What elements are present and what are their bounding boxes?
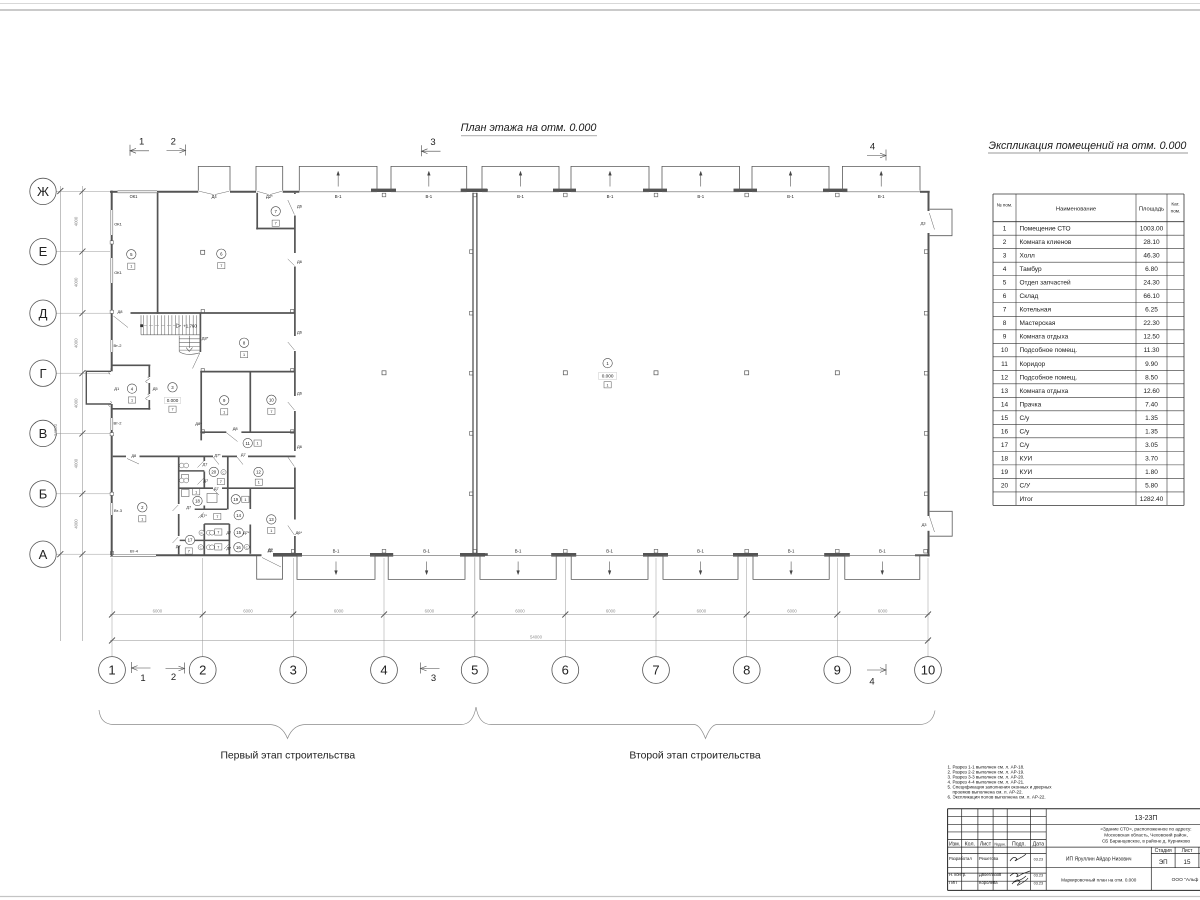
svg-text:3: 3 <box>431 673 436 684</box>
svg-text:9: 9 <box>1003 334 1007 341</box>
svg-text:2: 2 <box>1003 239 1007 246</box>
svg-text:1: 1 <box>108 663 115 678</box>
svg-text:С/у: С/у <box>1020 428 1031 435</box>
svg-text:13-23П: 13-23П <box>1135 815 1158 822</box>
svg-text:В-1: В-1 <box>697 194 704 199</box>
svg-text:03.23: 03.23 <box>1034 857 1044 861</box>
svg-text:Площадь: Площадь <box>1139 206 1164 212</box>
svg-text:В-1: В-1 <box>335 194 342 199</box>
svg-text:Ж: Ж <box>37 184 49 199</box>
svg-text:6000: 6000 <box>697 608 707 613</box>
svg-text:5: 5 <box>1003 280 1007 287</box>
svg-text:Наименование: Наименование <box>1056 206 1096 212</box>
svg-text:Д7: Д7 <box>214 486 219 491</box>
svg-text:Кол.: Кол. <box>965 841 975 847</box>
svg-text:7: 7 <box>652 663 659 678</box>
svg-text:Д1: Д1 <box>114 386 120 391</box>
svg-text:2: 2 <box>171 137 176 148</box>
svg-text:1: 1 <box>270 529 272 533</box>
svg-text:Котельная: Котельная <box>1020 307 1052 314</box>
svg-text:1: 1 <box>258 481 260 485</box>
svg-text:1: 1 <box>141 517 143 521</box>
svg-text:Второй этап строительства: Второй этап строительства <box>629 750 760 761</box>
svg-text:Подсобное помещ.: Подсобное помещ. <box>1020 373 1078 381</box>
svg-text:11: 11 <box>245 441 250 446</box>
svg-text:С/у: С/у <box>1020 442 1031 449</box>
svg-text:10: 10 <box>921 663 935 678</box>
svg-text:ООО "Альф: ООО "Альф <box>1172 877 1199 883</box>
svg-text:7: 7 <box>217 531 219 535</box>
svg-text:Вт-2: Вт-2 <box>114 343 123 348</box>
svg-text:8: 8 <box>743 663 750 678</box>
svg-text:Склад: Склад <box>1020 293 1039 300</box>
svg-text:1: 1 <box>223 410 225 414</box>
svg-text:Д: Д <box>39 306 48 321</box>
svg-text:1: 1 <box>607 383 609 387</box>
svg-text:В-1: В-1 <box>787 194 794 199</box>
svg-text:План этажа на отм. 0.000: План этажа на отм. 0.000 <box>461 122 597 134</box>
svg-text:В: В <box>39 426 48 441</box>
svg-text:7: 7 <box>188 550 190 554</box>
svg-text:5.80: 5.80 <box>1145 482 1158 489</box>
svg-text:7: 7 <box>171 408 173 412</box>
svg-text:4000: 4000 <box>74 458 79 468</box>
svg-text:6000: 6000 <box>878 608 888 613</box>
svg-text:15: 15 <box>1001 415 1009 422</box>
svg-text:6000: 6000 <box>787 608 797 613</box>
svg-text:Д3: Д3 <box>922 522 928 527</box>
svg-text:3: 3 <box>290 663 297 678</box>
svg-text:Г: Г <box>39 366 46 381</box>
svg-text:В-1: В-1 <box>333 548 340 553</box>
svg-text:6000: 6000 <box>153 608 163 613</box>
svg-text:Д2*: Д2* <box>266 194 273 199</box>
svg-text:Д8: Д8 <box>233 426 239 431</box>
svg-text:Решетова: Решетова <box>979 856 999 861</box>
svg-text:С/У: С/У <box>1020 482 1032 489</box>
svg-text:Итог: Итог <box>1020 496 1034 503</box>
svg-text:24.30: 24.30 <box>1143 280 1160 287</box>
svg-text:Комната отдыха: Комната отдыха <box>1020 334 1069 341</box>
svg-text:Кат.: Кат. <box>1171 202 1179 207</box>
svg-text:Д7: Д7 <box>226 530 231 535</box>
svg-text:Вт-4: Вт-4 <box>130 548 139 553</box>
svg-text:7: 7 <box>270 410 272 414</box>
svg-text:Разработал: Разработал <box>949 856 972 861</box>
svg-text:А: А <box>39 547 48 562</box>
svg-text:7: 7 <box>216 515 218 519</box>
svg-text:№док.: №док. <box>994 841 1006 846</box>
svg-text:4: 4 <box>869 677 874 688</box>
svg-text:3.05: 3.05 <box>1145 442 1158 449</box>
svg-text:В-1: В-1 <box>878 194 885 199</box>
svg-text:66.10: 66.10 <box>1143 293 1160 300</box>
svg-text:2: 2 <box>171 672 176 683</box>
svg-text:+1.760: +1.760 <box>183 324 197 329</box>
svg-text:16: 16 <box>236 545 241 550</box>
svg-text:Стадия: Стадия <box>1155 848 1172 854</box>
svg-text:Д7*: Д7* <box>201 513 208 518</box>
svg-text:Лист: Лист <box>1182 848 1194 854</box>
svg-text:Подсобное помещ.: Подсобное помещ. <box>1020 346 1078 354</box>
svg-text:1: 1 <box>139 137 144 148</box>
svg-text:Экспликация помещений на отм.: Экспликация помещений на отм. 0.000 <box>989 140 1187 152</box>
svg-text:В-1: В-1 <box>423 548 430 553</box>
svg-text:20: 20 <box>211 470 216 475</box>
svg-text:Е: Е <box>39 244 48 259</box>
svg-text:Двоеглазов: Двоеглазов <box>979 872 1002 877</box>
svg-text:28.10: 28.10 <box>1143 239 1160 246</box>
svg-text:1282.40: 1282.40 <box>1140 496 1164 503</box>
svg-text:Д7: Д7 <box>241 452 246 457</box>
svg-text:№ пом.: № пом. <box>997 203 1013 208</box>
svg-text:Прачка: Прачка <box>1020 401 1042 408</box>
svg-text:6000: 6000 <box>515 608 525 613</box>
svg-text:Д7*: Д7* <box>214 453 221 458</box>
svg-text:Д8*: Д8* <box>202 336 209 341</box>
svg-text:Д8*: Д8* <box>195 421 202 426</box>
svg-text:В-1: В-1 <box>515 548 522 553</box>
svg-text:Д6: Д6 <box>297 391 303 396</box>
svg-text:46.30: 46.30 <box>1143 253 1160 260</box>
svg-text:Подп.: Подп. <box>1012 841 1026 847</box>
svg-text:«Здание СТО», расположенное по: «Здание СТО», расположенное по адресу: <box>1100 827 1191 832</box>
svg-text:Московская область, Чеховский: Московская область, Чеховский район, <box>1104 832 1188 838</box>
svg-text:Д6: Д6 <box>297 259 303 264</box>
svg-text:Д7: Д7 <box>203 462 208 467</box>
svg-text:7: 7 <box>275 222 277 226</box>
svg-text:0.000: 0.000 <box>167 398 179 403</box>
svg-text:2: 2 <box>199 663 206 678</box>
svg-text:Холл: Холл <box>1020 253 1036 260</box>
svg-text:7: 7 <box>217 545 219 549</box>
svg-text:1.35: 1.35 <box>1145 415 1158 422</box>
svg-text:12.60: 12.60 <box>1143 388 1160 395</box>
svg-text:Д4: Д4 <box>212 194 218 199</box>
svg-text:4: 4 <box>380 663 387 678</box>
svg-text:Д7: Д7 <box>186 504 191 509</box>
svg-text:7: 7 <box>220 264 222 268</box>
svg-text:В-1: В-1 <box>697 548 704 553</box>
svg-text:1003.00: 1003.00 <box>1140 226 1164 233</box>
svg-text:3: 3 <box>430 137 435 148</box>
svg-text:22.30: 22.30 <box>1143 320 1160 327</box>
svg-text:9.90: 9.90 <box>1145 361 1158 368</box>
svg-text:Комната отдыха: Комната отдыха <box>1020 388 1069 395</box>
svg-text:КУИ: КУИ <box>1020 455 1033 462</box>
svg-text:10: 10 <box>1001 347 1009 354</box>
svg-text:Мастерская: Мастерская <box>1020 320 1056 327</box>
svg-text:Д2: Д2 <box>268 547 273 552</box>
svg-text:1.35: 1.35 <box>1145 428 1158 435</box>
svg-text:15: 15 <box>236 530 241 535</box>
svg-text:13: 13 <box>269 517 274 522</box>
svg-text:Вт-2: Вт-2 <box>114 421 123 426</box>
svg-text:Лист: Лист <box>980 841 992 847</box>
svg-text:Д7: Д7 <box>203 478 208 483</box>
svg-text:8: 8 <box>1003 320 1007 327</box>
svg-text:6: 6 <box>1003 293 1007 300</box>
svg-text:12: 12 <box>1001 374 1009 381</box>
svg-text:14: 14 <box>1001 401 1009 408</box>
svg-text:54000: 54000 <box>530 634 543 639</box>
svg-text:03.23: 03.23 <box>1034 881 1044 885</box>
svg-text:ОК1: ОК1 <box>114 270 122 275</box>
svg-text:19: 19 <box>1001 469 1009 476</box>
svg-text:ОК1: ОК1 <box>114 222 122 227</box>
svg-text:4000: 4000 <box>74 519 79 529</box>
svg-text:Изм.: Изм. <box>949 841 960 847</box>
svg-text:СБ Баранцевское, в районе д. К: СБ Баранцевское, в районе д. Курниково <box>1102 838 1191 844</box>
svg-text:1: 1 <box>131 399 133 403</box>
svg-text:6: 6 <box>562 663 569 678</box>
svg-text:Помещение СТО: Помещение СТО <box>1020 226 1071 233</box>
svg-text:ГИП: ГИП <box>949 880 957 885</box>
svg-text:17: 17 <box>188 538 193 543</box>
svg-text:Д8: Д8 <box>131 453 136 458</box>
svg-text:В-1: В-1 <box>607 194 614 199</box>
svg-text:7: 7 <box>220 480 222 484</box>
svg-text:Д3: Д3 <box>921 221 927 226</box>
svg-text:В-1: В-1 <box>517 194 524 199</box>
svg-text:Д8: Д8 <box>118 309 124 314</box>
svg-text:КУИ: КУИ <box>1020 469 1033 476</box>
svg-text:6000: 6000 <box>243 608 253 613</box>
svg-text:14: 14 <box>236 513 241 518</box>
svg-text:Д6*: Д6* <box>296 530 303 535</box>
svg-text:18: 18 <box>195 499 200 504</box>
svg-text:4: 4 <box>1003 266 1007 273</box>
svg-text:8.50: 8.50 <box>1145 374 1158 381</box>
svg-text:пом.: пом. <box>1171 208 1181 213</box>
svg-text:6000: 6000 <box>425 608 435 613</box>
svg-text:7.40: 7.40 <box>1145 401 1158 408</box>
svg-text:Отдел запчастей: Отдел запчастей <box>1020 279 1071 287</box>
svg-text:1: 1 <box>257 442 259 446</box>
svg-text:6.80: 6.80 <box>1145 266 1158 273</box>
svg-text:9: 9 <box>834 663 841 678</box>
svg-text:6000: 6000 <box>334 608 344 613</box>
svg-text:В-1: В-1 <box>426 194 433 199</box>
svg-text:24000: 24000 <box>53 423 58 436</box>
svg-text:12: 12 <box>256 470 261 475</box>
svg-text:4000: 4000 <box>74 216 79 226</box>
svg-text:4000: 4000 <box>74 398 79 408</box>
svg-text:13: 13 <box>1001 388 1009 395</box>
svg-text:Комната клиенов: Комната клиенов <box>1020 239 1072 246</box>
svg-text:1: 1 <box>243 353 245 357</box>
svg-text:4000: 4000 <box>74 338 79 348</box>
svg-text:Д7: Д7 <box>176 544 181 549</box>
svg-text:Коридор: Коридор <box>1020 361 1046 368</box>
svg-text:15: 15 <box>1184 859 1191 866</box>
svg-text:ЭП: ЭП <box>1159 859 1168 866</box>
svg-text:17: 17 <box>1001 442 1009 449</box>
svg-text:10: 10 <box>269 398 274 403</box>
svg-text:20: 20 <box>1001 482 1009 489</box>
svg-text:Д6: Д6 <box>297 203 303 208</box>
svg-text:Первый этап строительства: Первый этап строительства <box>220 750 355 761</box>
svg-text:7: 7 <box>1003 307 1007 314</box>
svg-text:4000: 4000 <box>74 277 79 287</box>
svg-text:В-1: В-1 <box>879 548 886 553</box>
svg-text:Тамбур: Тамбур <box>1020 265 1042 273</box>
svg-text:4: 4 <box>870 142 875 153</box>
svg-text:0.000: 0.000 <box>602 374 614 379</box>
svg-text:1: 1 <box>140 673 145 684</box>
svg-text:Д7: Д7 <box>226 545 231 550</box>
svg-text:Д6: Д6 <box>297 329 303 334</box>
svg-text:03.23: 03.23 <box>1034 873 1044 877</box>
svg-text:В-1: В-1 <box>788 548 795 553</box>
svg-text:11.30: 11.30 <box>1144 347 1160 354</box>
svg-text:1: 1 <box>195 490 197 494</box>
svg-text:ИП Яруллин Айдар Низович: ИП Яруллин Айдар Низович <box>1066 855 1132 862</box>
svg-text:Д6: Д6 <box>297 444 303 449</box>
svg-text:18: 18 <box>1001 455 1009 462</box>
svg-text:С/у: С/у <box>1020 415 1031 422</box>
svg-text:16: 16 <box>1001 428 1009 435</box>
svg-text:Б: Б <box>39 486 48 501</box>
svg-text:1: 1 <box>244 498 246 502</box>
svg-text:1: 1 <box>130 265 132 269</box>
svg-text:6000: 6000 <box>606 608 616 613</box>
svg-text:Н. контр.: Н. контр. <box>949 872 966 877</box>
svg-text:3: 3 <box>1003 253 1007 260</box>
svg-text:ОК1: ОК1 <box>130 194 139 199</box>
svg-text:В-1: В-1 <box>606 548 613 553</box>
svg-text:Д5: Д5 <box>153 386 159 391</box>
svg-text:6.25: 6.25 <box>1145 307 1158 314</box>
svg-text:12.50: 12.50 <box>1143 334 1160 341</box>
svg-text:Маркировочный план на отм. 0.0: Маркировочный план на отм. 0.000 <box>1061 876 1137 882</box>
svg-text:11: 11 <box>1001 361 1008 368</box>
svg-text:19: 19 <box>233 497 238 502</box>
svg-text:Дата: Дата <box>1033 841 1045 847</box>
svg-text:Д7*: Д7* <box>243 530 250 535</box>
svg-text:Королева: Королева <box>979 880 998 885</box>
svg-text:1.80: 1.80 <box>1145 469 1158 476</box>
svg-text:6. Экспликация полов выполнена: 6. Экспликация полов выполнена см. л. АР… <box>948 795 1046 800</box>
svg-text:5: 5 <box>471 663 478 678</box>
svg-text:3.70: 3.70 <box>1145 455 1158 462</box>
svg-text:1: 1 <box>1003 226 1007 233</box>
svg-text:Вт-3: Вт-3 <box>114 508 123 513</box>
